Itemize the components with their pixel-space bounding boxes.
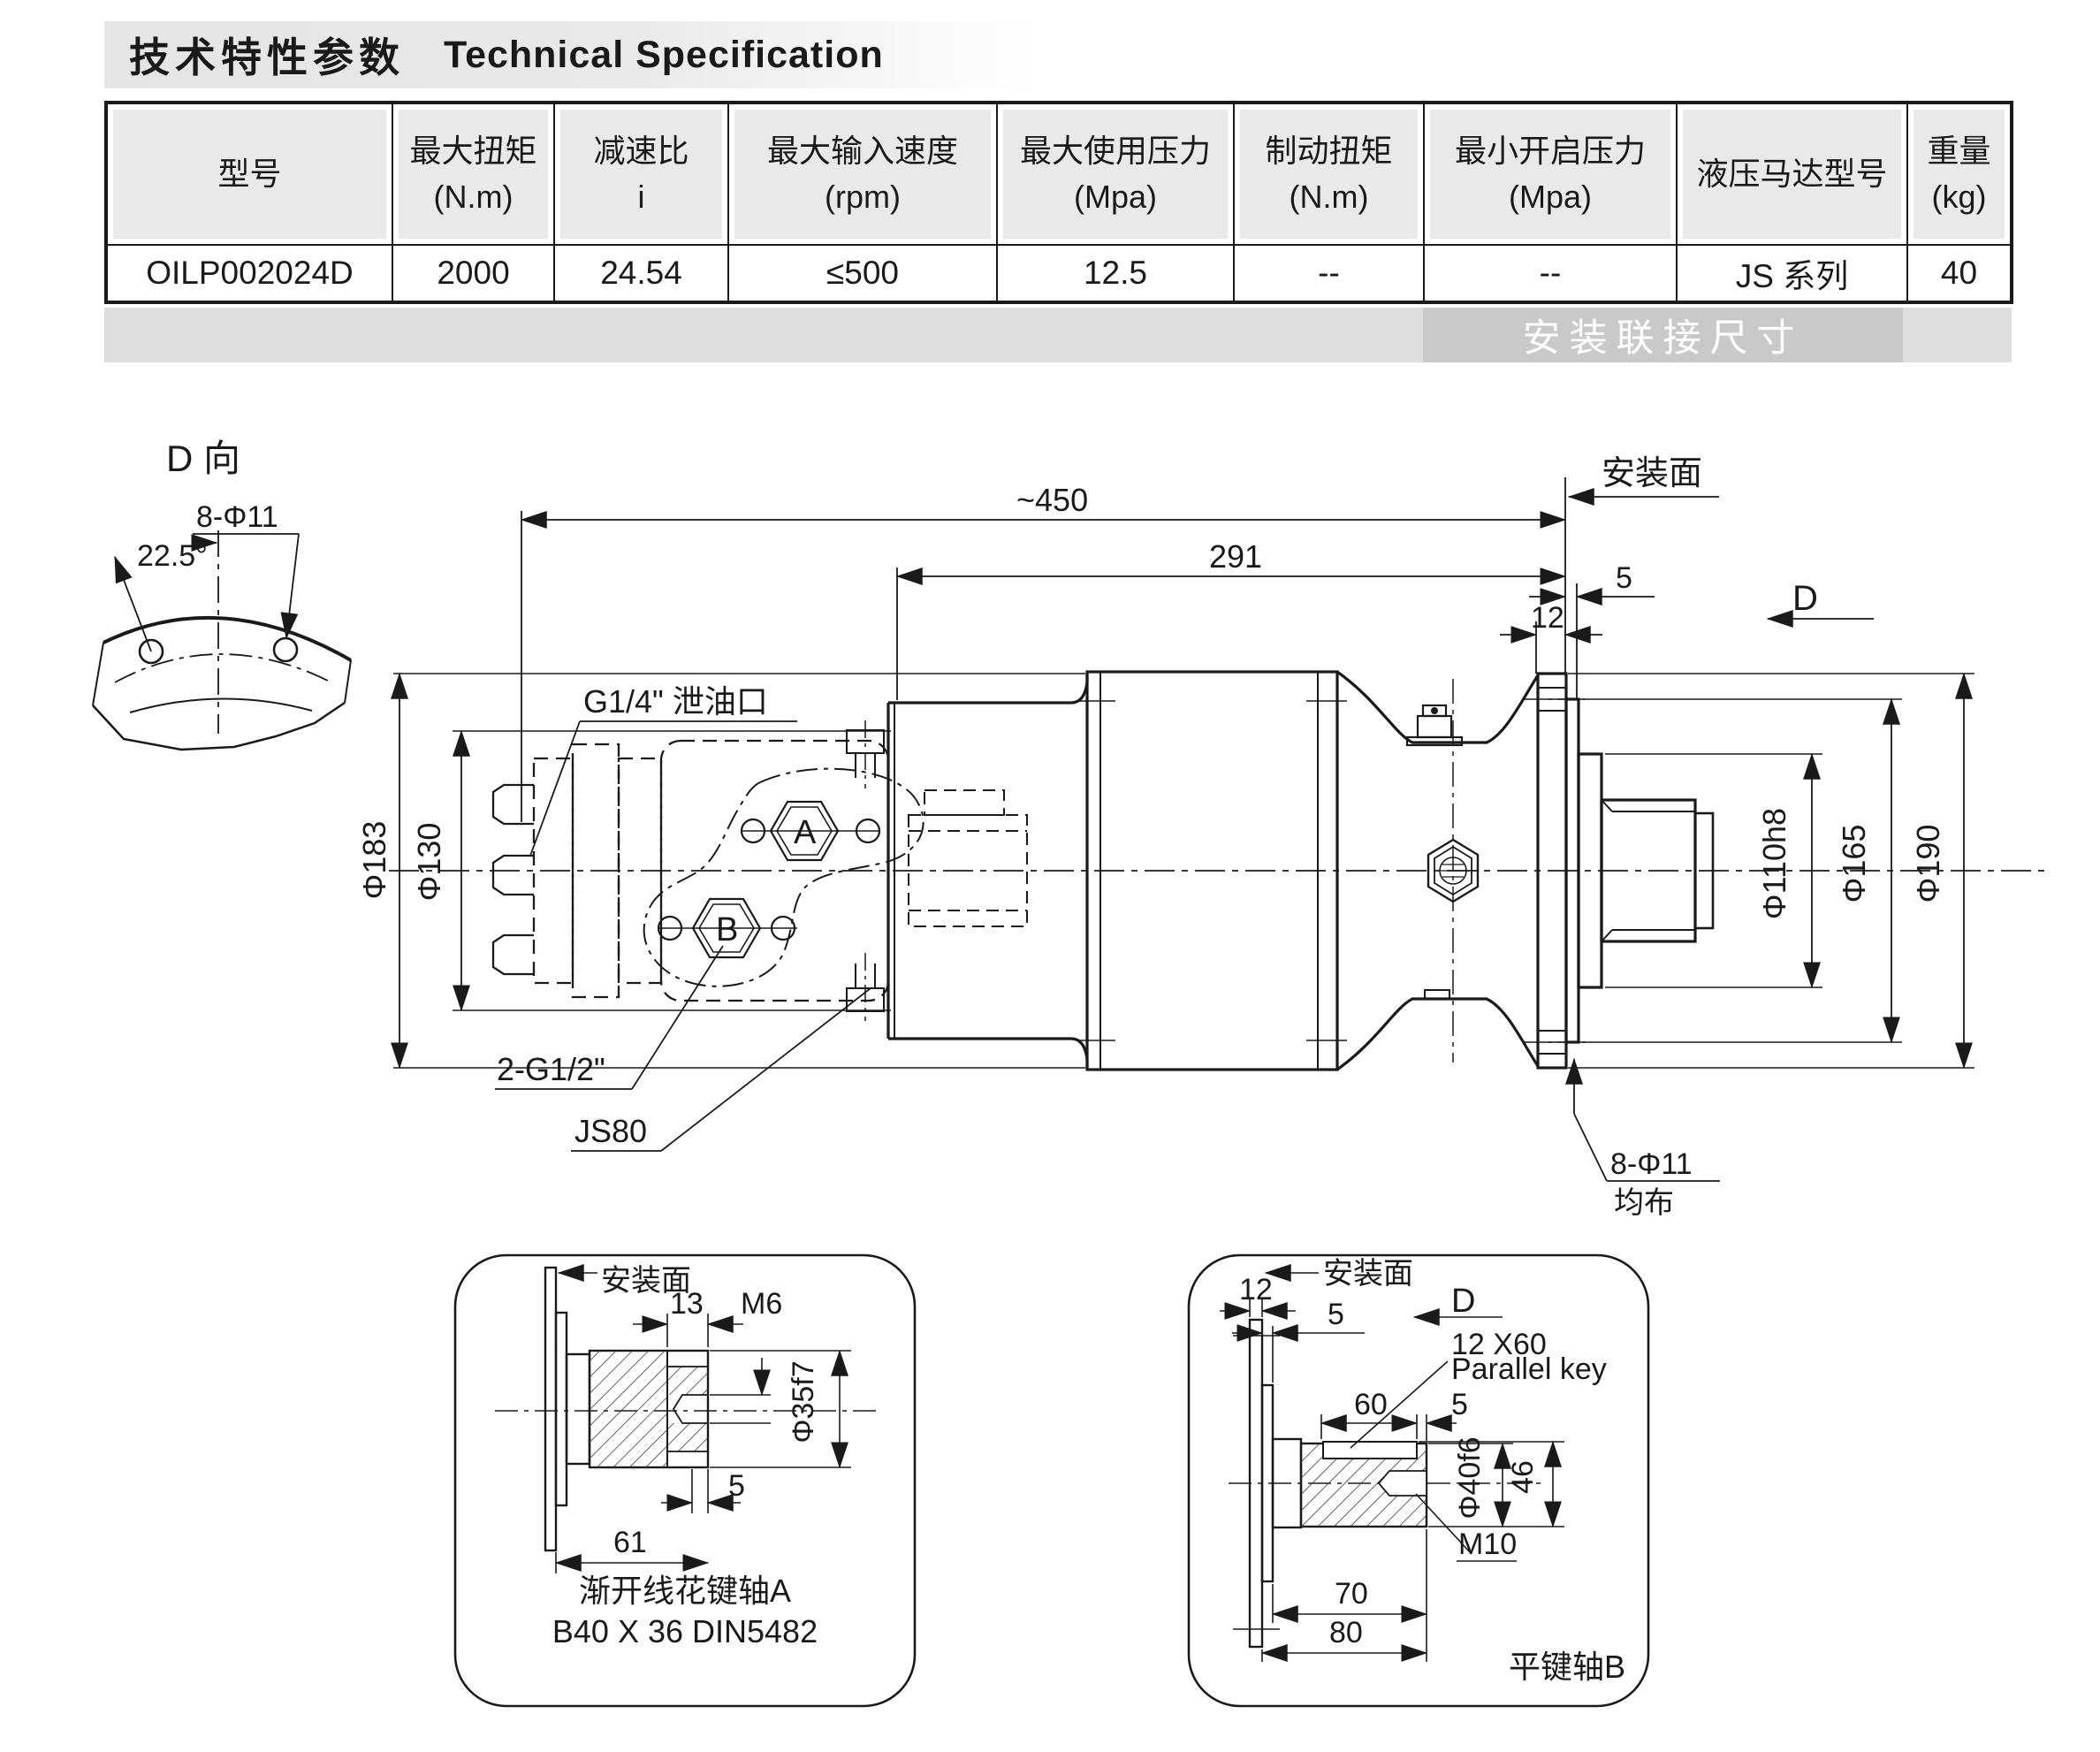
drain-port-label: G1/4" 泄油口 [583, 683, 768, 720]
dim-291: 291 [1209, 538, 1262, 575]
detail-a: 安装面 13 M6 Φ35f7 5 61 渐开线花键轴A B40 X 36 DI… [455, 1255, 915, 1706]
dim-dia190: Φ190 [1910, 825, 1946, 903]
detail-a-thread: M6 [741, 1287, 782, 1321]
d-view-holes-label: 8-Φ11 [196, 500, 278, 534]
main-dimensions [393, 477, 1974, 1181]
view-d-label: D [1792, 579, 1818, 618]
dim-12: 12 [1531, 601, 1564, 635]
motor-model-label: JS80 [574, 1113, 647, 1149]
technical-drawing: D 向 8-Φ11 22.5° [0, 0, 2100, 1752]
detail-b-dim46: 46 [1506, 1460, 1540, 1494]
d-view-title: D 向 [166, 438, 240, 479]
dim-dia110h8: Φ110h8 [1756, 808, 1792, 919]
detail-a-dim5: 5 [728, 1469, 745, 1503]
detail-b-mounting-face: 安装面 [1323, 1257, 1413, 1291]
mounting-face-label: 安装面 [1602, 455, 1702, 492]
dim-overall-length: ~450 [1016, 482, 1088, 518]
detail-b-key-label: Parallel key [1451, 1352, 1607, 1386]
detail-a-caption1: 渐开线花键轴A [579, 1573, 791, 1609]
detail-a-dia35: Φ35f7 [787, 1360, 820, 1443]
flange-holes-label: 8-Φ11 [1610, 1147, 1693, 1181]
ports-label: 2-G1/2" [497, 1051, 605, 1087]
detail-b-dim12: 12 [1239, 1273, 1273, 1306]
detail-b-dim80: 80 [1329, 1616, 1363, 1649]
valve-face-outline [644, 769, 924, 986]
detail-a-caption2: B40 X 36 DIN5482 [552, 1613, 818, 1649]
catalog-page: 技术特性参数 Technical Specification 型号 最大扭矩(N… [0, 0, 2100, 1752]
detail-b-thread: M10 [1458, 1527, 1517, 1561]
d-view: D 向 8-Φ11 22.5° [93, 438, 351, 750]
motor-bolt-heads [493, 785, 534, 974]
dim-5: 5 [1616, 561, 1632, 595]
detail-b-dim60: 60 [1354, 1388, 1388, 1421]
detail-b-view-d: D [1451, 1283, 1475, 1320]
detail-b: 12 安装面 5 D 12 X60 Parallel key 60 5 Φ40f… [1189, 1255, 1648, 1706]
input-coupling [909, 790, 1027, 926]
d-view-angle-label: 22.5° [137, 539, 208, 573]
dim-dia165: Φ165 [1836, 825, 1872, 903]
detail-b-dim5b: 5 [1451, 1388, 1468, 1421]
detail-b-dim5a: 5 [1328, 1298, 1344, 1331]
detail-a-dim61: 61 [613, 1526, 647, 1559]
detail-b-dim70: 70 [1335, 1577, 1368, 1611]
port-a-label: A [794, 814, 817, 851]
dim-dia183: Φ183 [356, 821, 392, 900]
main-view: A B [356, 455, 2051, 1220]
dim-dia130: Φ130 [411, 823, 447, 902]
port-b-label: B [716, 911, 738, 948]
detail-b-caption: 平键轴B [1509, 1649, 1625, 1685]
evenly-spaced-label: 均布 [1614, 1186, 1674, 1220]
detail-b-dia40: Φ40f6 [1453, 1436, 1487, 1519]
detail-a-dim13: 13 [670, 1287, 704, 1321]
